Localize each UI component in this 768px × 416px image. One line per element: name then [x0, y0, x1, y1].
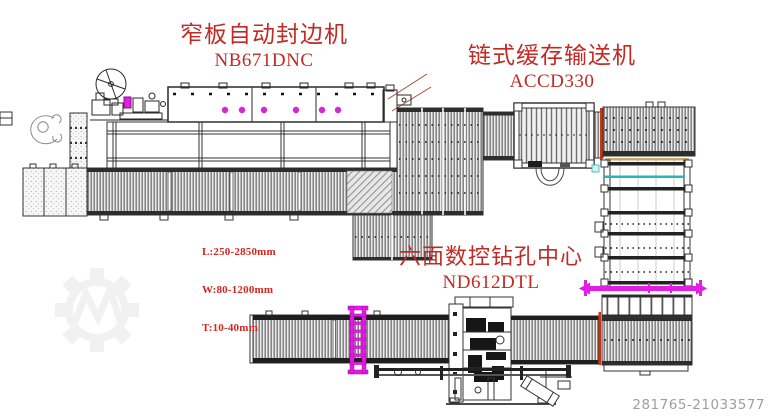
infeed-table: [23, 164, 87, 216]
listing-id: 281765-21033577: [632, 397, 765, 413]
drill-line: [250, 297, 598, 406]
infeed-assembly: [90, 93, 168, 120]
machine-layout-diagram: 窄板自动封边机 NB671DNC 链式缓存输送机 ACCD330 六面数控钻孔中…: [0, 0, 768, 416]
drill-infeed-conveyor: [250, 311, 449, 363]
label-edge-bander: 窄板自动封边机 NB671DNC: [134, 22, 394, 71]
bander-frame: [107, 122, 390, 168]
cyan-accent-line: [603, 176, 685, 179]
red-accent-line-top: [600, 108, 603, 160]
infeed-area: [0, 112, 87, 216]
cable-loop: [536, 168, 564, 185]
panel-specs: L:250-2850mm W:80-1200mm T:10-40mm: [202, 220, 276, 348]
red-accent-line-bottom: [599, 312, 602, 365]
edge-bander-machine: [90, 69, 431, 168]
panel-board: [347, 171, 392, 213]
label-chain-buffer: 链式缓存输送机 ACCD330: [442, 43, 662, 92]
buffer-column-frames: [595, 160, 692, 290]
spec-thickness: T:10-40mm: [202, 322, 276, 335]
cross-transfer-block: [397, 108, 483, 215]
bander-body: [168, 83, 411, 122]
spec-width: W:80-1200mm: [202, 284, 276, 297]
spec-length: L:250-2850mm: [202, 246, 276, 259]
outfeed-conveyor-bottom-right: [599, 295, 693, 375]
angled-unit: [521, 376, 560, 406]
magenta-gantry: [348, 306, 368, 374]
tan-accent-line: [605, 158, 689, 161]
drill-center-name: 六面数控钻孔中心: [380, 245, 602, 270]
chain-unit: [514, 103, 594, 168]
operator-figure: [31, 115, 62, 144]
chain-buffer-conveyor: [483, 103, 603, 185]
edge-bander-model: NB671DNC: [134, 50, 394, 71]
edge-bander-name: 窄板自动封边机: [134, 22, 394, 48]
drilling-center-machine: [449, 297, 513, 402]
label-drill-center: 六面数控钻孔中心 ND612DTL: [380, 245, 602, 293]
frame-corner-blocks: [601, 160, 692, 286]
drill-outfeed-conveyor: [511, 316, 598, 364]
chain-buffer-name: 链式缓存输送机: [442, 43, 662, 69]
drill-center-model: ND612DTL: [380, 272, 602, 293]
watermark-gear-icon: [55, 268, 139, 352]
chain-buffer-model: ACCD330: [442, 71, 662, 92]
